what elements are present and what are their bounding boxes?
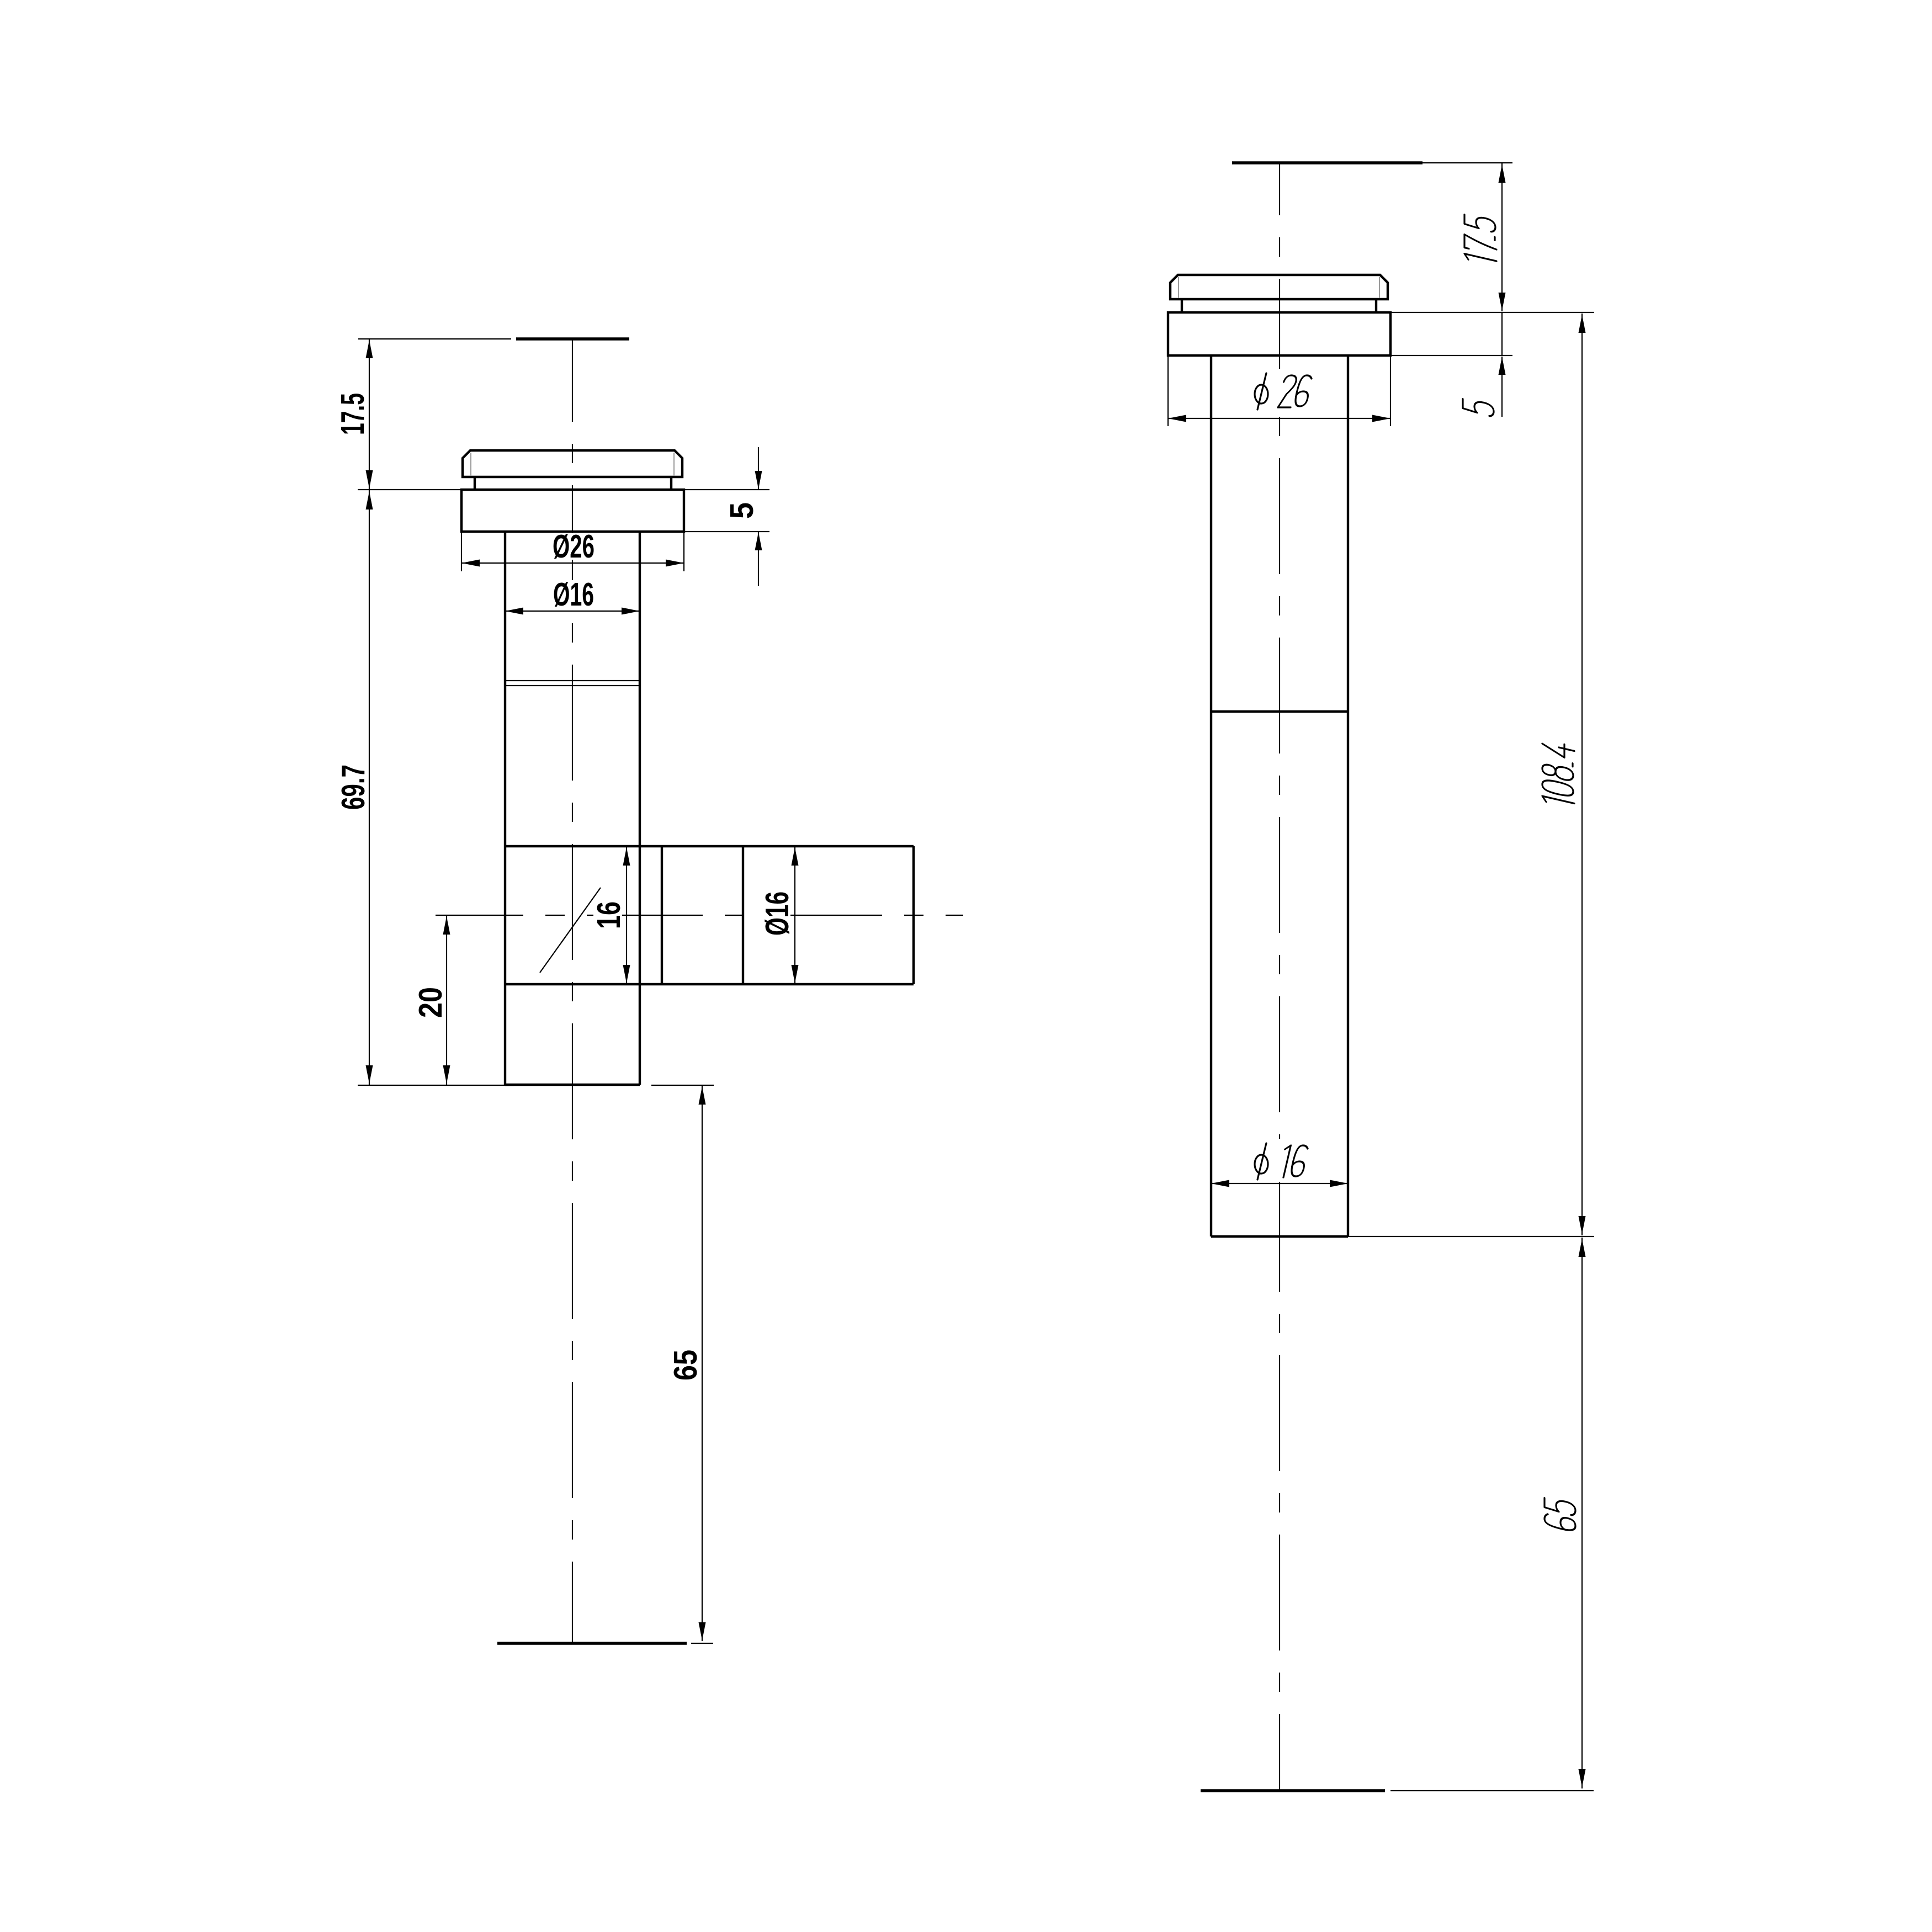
- svg-text:65: 65: [667, 1350, 704, 1381]
- svg-text:20: 20: [412, 987, 449, 1018]
- svg-text:17.5: 17.5: [335, 393, 371, 435]
- svg-text:16: 16: [591, 901, 627, 929]
- svg-text:Ø26: Ø26: [553, 528, 595, 565]
- svg-text:69.7: 69.7: [335, 765, 371, 810]
- svg-text:Ø16: Ø16: [553, 576, 594, 613]
- svg-text:5: 5: [724, 502, 760, 519]
- svg-text:Ø16: Ø16: [759, 891, 795, 936]
